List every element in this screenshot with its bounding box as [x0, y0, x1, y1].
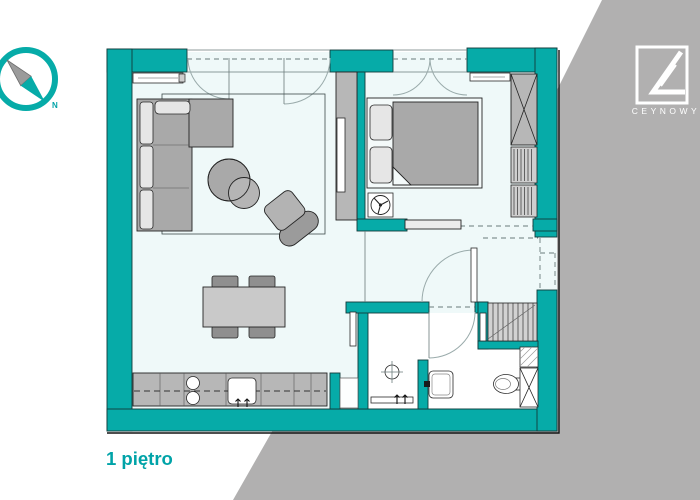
north-label: N: [52, 101, 58, 110]
logo-text: CEYNOWY: [632, 106, 700, 116]
bed: [367, 98, 482, 188]
stairs: [488, 303, 537, 341]
hob-burner: [187, 392, 200, 405]
water-heater-hatch: [520, 347, 538, 367]
dining-chair: [249, 276, 275, 288]
dining-chair: [212, 276, 238, 288]
compass: N: [0, 50, 58, 110]
floor-title: 1 piętro: [106, 448, 173, 469]
kitchen-sink: [228, 378, 256, 404]
dining-chair: [212, 326, 238, 338]
shelf: [470, 73, 510, 81]
wall-niche: [340, 378, 358, 408]
radiator: [133, 73, 185, 83]
floor-plan-graphic: N CEYNOWY: [0, 0, 700, 500]
dining-chair: [249, 326, 275, 338]
kitchen-counter: [133, 373, 327, 407]
bathroom-cabinet: [520, 368, 538, 407]
presentation-slide: N CEYNOWY: [0, 0, 700, 500]
radiator: [350, 312, 356, 346]
radiator: [480, 313, 486, 341]
dining-table: [203, 287, 285, 327]
floor-plan: [107, 48, 559, 433]
ceiling-fan-symbol: [368, 193, 393, 217]
hob-burner: [187, 377, 200, 390]
pillow: [370, 105, 392, 140]
tv-cabinet: [336, 72, 357, 220]
pillow: [370, 147, 392, 183]
